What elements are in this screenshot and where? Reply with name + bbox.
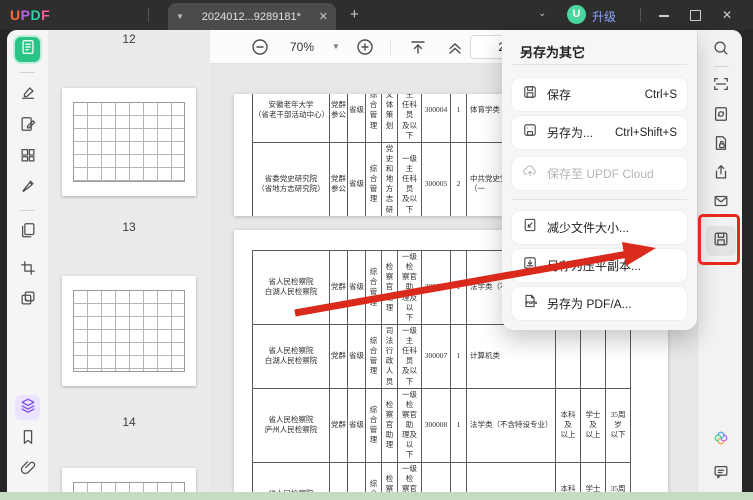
collapse-toolbar-chevron-icon[interactable]: ⌄ [538, 8, 546, 19]
logo-letter: P [21, 7, 31, 23]
attachment-tool-button[interactable] [15, 458, 40, 483]
table-cell: 党群 [330, 388, 348, 462]
table-cell: 300006 [422, 251, 451, 325]
ocr-button[interactable] [709, 74, 733, 98]
table-cell: 检察 官助 理 [382, 388, 398, 462]
table-cell: 文体 策划 [382, 94, 398, 142]
menu-item-save[interactable]: 保存 Ctrl+S [512, 78, 687, 111]
table-cell: 1 [451, 251, 467, 325]
table-row: 省人民检察院 庐州人民检察院党群省级综合 管理检察 官助 理一级检 察官助 理及… [253, 388, 631, 462]
table-cell: 司法 行政 人员 [382, 324, 398, 388]
left-toolbar [7, 30, 48, 492]
ai-flower-icon [712, 429, 730, 452]
zoom-out-button[interactable] [250, 37, 270, 57]
table-cell: 学士及 以上 [581, 462, 606, 492]
menu-divider [512, 64, 687, 65]
menu-divider [512, 199, 687, 200]
table-cell: 综合 管理 [366, 324, 382, 388]
table-cell: 省级 [348, 324, 366, 388]
upgrade-button[interactable]: 升级 [592, 8, 616, 25]
menu-item-label: 另存为... [547, 124, 606, 141]
page-tools-button[interactable] [15, 220, 40, 245]
convert-icon [712, 105, 730, 128]
page-label: 13 [48, 220, 210, 234]
ocr-icon [712, 75, 730, 98]
tab-dropdown-caret-icon[interactable]: ▼ [176, 12, 184, 21]
batch-tool-button[interactable] [15, 288, 40, 313]
table-cell: 检察 官助 理 [382, 462, 398, 492]
page-thumbnail-13[interactable] [62, 88, 196, 196]
email-icon [712, 192, 730, 215]
menu-item-reduce-file-size[interactable]: 减少文件大小... [512, 211, 687, 244]
crop-icon [19, 259, 37, 282]
thumbnail-table-preview [73, 482, 185, 492]
table-cell [556, 324, 581, 388]
toolbar-separator [390, 39, 391, 55]
page-thumbnail-15[interactable] [62, 468, 196, 492]
table-cell: 一级主 任科员 及以下 [398, 142, 422, 216]
menu-item-save-as[interactable]: 另存为... Ctrl+Shift+S [512, 116, 687, 149]
user-avatar[interactable]: U [567, 5, 586, 24]
table-cell: 综合 管理 [366, 251, 382, 325]
feedback-button[interactable] [709, 462, 733, 486]
titlebar: UPDF 文件 帮助 ▼ 2024012...9289181* ✕ + ⌄ U … [0, 0, 753, 30]
compress-icon [522, 217, 538, 238]
feedback-icon [712, 463, 730, 486]
comment-tool-button[interactable] [15, 82, 40, 107]
table-cell: 2 [451, 142, 467, 216]
page-label: 14 [48, 415, 210, 429]
bookmark-tool-button[interactable] [15, 427, 40, 452]
svg-text:PDF/A: PDF/A [526, 301, 537, 305]
table-cell: 一级检 察官助 理及以 下 [398, 388, 422, 462]
table-cell: 党群 参公 [330, 94, 348, 142]
menu-item-label: 另存为 PDF/A... [547, 295, 677, 312]
share-icon [712, 163, 730, 186]
save-as-icon [522, 122, 538, 143]
highlighter-icon [19, 83, 37, 106]
tab-title: 2024012...9289181* [190, 11, 313, 23]
search-icon [712, 39, 730, 62]
window-close-button[interactable]: ✕ [718, 6, 736, 24]
share-button[interactable] [709, 162, 733, 186]
table-cell: 省人民检察院 白湖人民检察院 [253, 324, 330, 388]
table-cell: 法学类（不含特设专业） [467, 388, 556, 462]
arrow-to-top-icon [408, 44, 428, 61]
logo-letter: U [10, 7, 21, 23]
menu-item-label: 保存至 UPDF Cloud [547, 165, 677, 182]
zoom-out-icon [250, 44, 270, 61]
table-cell: 省人民检察院 九城坂人民检察院 [253, 462, 330, 492]
double-chevron-up-icon [445, 44, 465, 61]
new-tab-button[interactable]: + [350, 6, 359, 23]
ai-layers-icon [19, 396, 37, 419]
table-cell: 35周岁 以下 [606, 388, 631, 462]
tab-close-icon[interactable]: ✕ [319, 10, 328, 23]
menu-item-save-to-cloud[interactable]: 保存至 UPDF Cloud [512, 157, 687, 190]
table-cell: 300005 [422, 142, 451, 216]
zoom-in-icon [355, 44, 375, 61]
table-cell [581, 324, 606, 388]
table-cell: 一级检 察官助 理及以 下 [398, 251, 422, 325]
thumbnail-table-preview [73, 102, 185, 182]
edit-pdf-button[interactable] [15, 114, 40, 139]
zoom-dropdown-caret-icon[interactable]: ▼ [332, 42, 340, 51]
crop-tool-button[interactable] [15, 258, 40, 283]
table-cell: 法学类（不含特设专业） [467, 462, 556, 492]
table-cell: 省委党史研究院 （省地方志研究院） [253, 142, 330, 216]
email-button[interactable] [709, 191, 733, 215]
protect-button[interactable] [709, 133, 733, 157]
pages-icon [19, 221, 37, 244]
table-cell: 本科及 以上 [556, 462, 581, 492]
table-cell: 综合 管理 [366, 142, 382, 216]
edit-icon [19, 115, 37, 138]
table-cell: 综合 管理 [366, 462, 382, 492]
table-cell: 1 [451, 94, 467, 142]
thumbnail-table-preview [73, 290, 185, 372]
table-cell: 学士及 以上 [581, 388, 606, 462]
maximize-button[interactable] [686, 6, 704, 24]
ai-assistant-button[interactable] [15, 395, 40, 420]
search-button[interactable] [709, 38, 733, 62]
red-highlight-box-annotation [698, 214, 740, 265]
table-cell: 省级 [348, 462, 366, 492]
updf-logo: UPDF [10, 7, 50, 23]
table-cell: 省级 [348, 142, 366, 216]
table-cell: 300009 [422, 462, 451, 492]
table-cell: 300008 [422, 388, 451, 462]
logo-letter: F [41, 7, 50, 23]
menu-item-shortcut: Ctrl+S [645, 89, 677, 101]
titlebar-separator [640, 8, 641, 22]
table-cell: 党群 参公 [330, 142, 348, 216]
page-thumbnail-14[interactable] [62, 276, 196, 386]
table-cell: 300007 [422, 324, 451, 388]
page-label: 12 [48, 32, 210, 46]
table-cell: 检察 官助 理 [382, 251, 398, 325]
save-as-menu-title: 另存为其它 [520, 42, 585, 61]
table-cell: 一级主 任科员 及以下 [398, 324, 422, 388]
save-as-menu: 另存为其它 保存 Ctrl+S 另存为... Ctrl+Shift+S 保存至 … [502, 30, 697, 330]
scroll-to-top-button[interactable] [408, 37, 428, 57]
updf-app-window: UPDF 文件 帮助 ▼ 2024012...9289181* ✕ + ⌄ U … [0, 0, 753, 500]
logo-letter: D [30, 7, 41, 23]
table-cell: 1 [451, 388, 467, 462]
ai-tools-button[interactable] [709, 428, 733, 452]
table-row: 省人民检察院 白湖人民检察院党群省级综合 管理司法 行政 人员一级主 任科员 及… [253, 324, 631, 388]
table-cell: 省级 [348, 388, 366, 462]
table-cell: 党群 [330, 324, 348, 388]
reader-mode-button[interactable] [15, 37, 40, 62]
zoom-level: 70% [290, 40, 314, 54]
table-cell: 党群 [330, 251, 348, 325]
menu-item-save-flattened-copy[interactable]: 另存为压平副本... [512, 249, 687, 282]
table-cell [606, 324, 631, 388]
table-cell: 党史 和地 方志 研究 [382, 142, 398, 216]
duplicate-icon [19, 289, 37, 312]
menu-item-save-as-pdfa[interactable]: PDF/A 另存为 PDF/A... [512, 287, 687, 320]
table-cell: 本科及 以上 [556, 388, 581, 462]
bookmark-icon [19, 428, 37, 451]
menu-item-label: 另存为压平副本... [547, 257, 677, 274]
table-cell: 省人民检察院 白湖人民检察院 [253, 251, 330, 325]
table-cell: 一级主 任科员 及以下 [398, 94, 422, 142]
table-cell: 35周岁 以下 [606, 462, 631, 492]
save-icon [522, 84, 538, 105]
zoom-in-button[interactable] [355, 37, 375, 57]
pdfa-icon: PDF/A [522, 293, 538, 314]
attachment-icon [19, 459, 37, 482]
table-cell: 1 [451, 462, 467, 492]
table-cell: 省级 [348, 251, 366, 325]
table-row: 省人民检察院 九城坂人民检察院党群省级综合 管理检察 官助 理一级检 察官助 理… [253, 462, 631, 492]
table-cell: 综合 管理 [366, 94, 382, 142]
table-cell: 300004 [422, 94, 451, 142]
table-cell: 党群 [330, 462, 348, 492]
convert-button[interactable] [709, 104, 733, 128]
fill-sign-button[interactable] [15, 176, 40, 201]
bottom-edge-strip [0, 492, 753, 500]
protect-lock-icon [712, 134, 730, 157]
titlebar-separator [148, 8, 149, 22]
table-cell: 省人民检察院 庐州人民检察院 [253, 388, 330, 462]
table-cell: 综合 管理 [366, 388, 382, 462]
cloud-upload-icon [522, 163, 538, 184]
menu-item-label: 减少文件大小... [547, 219, 677, 236]
thumbnail-panel: 12 13 14 [48, 30, 210, 492]
menu-item-label: 保存 [547, 86, 636, 103]
menu-item-shortcut: Ctrl+Shift+S [615, 127, 677, 139]
previous-page-button[interactable] [445, 37, 465, 57]
table-cell: 安徽老年大学 （省老干部活动中心） [253, 94, 330, 142]
rail-divider [714, 66, 729, 67]
table-cell: 一级检 察官助 理及以 下 [398, 462, 422, 492]
rail-divider [20, 72, 35, 73]
organize-pages-icon [19, 146, 37, 169]
rail-divider [20, 210, 35, 211]
minimize-button[interactable] [655, 6, 673, 24]
table-cell: 1 [451, 324, 467, 388]
table-cell: 计算机类 [467, 324, 556, 388]
flatten-copy-icon [522, 255, 538, 276]
document-tab[interactable]: ▼ 2024012...9289181* ✕ [168, 3, 336, 30]
reader-icon [19, 38, 37, 61]
organize-pages-button[interactable] [15, 145, 40, 170]
fill-sign-icon [19, 177, 37, 200]
table-cell: 省级 [348, 94, 366, 142]
